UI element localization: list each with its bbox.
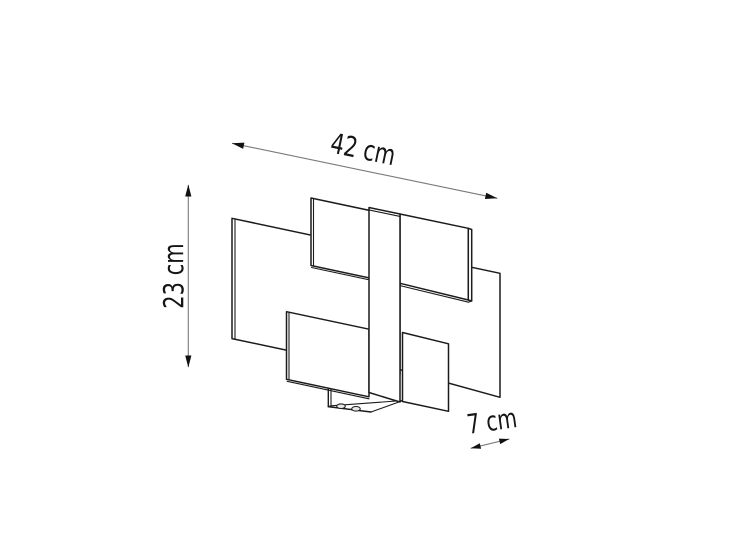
height-dimension-label: 23 cm <box>160 243 188 308</box>
arrowhead-icon <box>185 185 191 197</box>
arrowhead-icon <box>499 439 509 445</box>
arrowhead-icon <box>471 443 481 448</box>
depth-dimension-label: 7 cm <box>465 405 518 439</box>
center-column <box>369 208 400 403</box>
lamp-line-drawing <box>0 0 732 550</box>
screw-icon <box>337 404 346 409</box>
arrowhead-icon <box>485 193 497 199</box>
arrowhead-icon <box>232 143 244 149</box>
screw-icon <box>352 407 361 412</box>
arrowhead-icon <box>185 356 191 368</box>
dimension-diagram: 42 cm 23 cm 7 cm <box>0 0 732 550</box>
plate-bottom-right <box>403 333 449 412</box>
depth-dimension <box>471 439 510 449</box>
